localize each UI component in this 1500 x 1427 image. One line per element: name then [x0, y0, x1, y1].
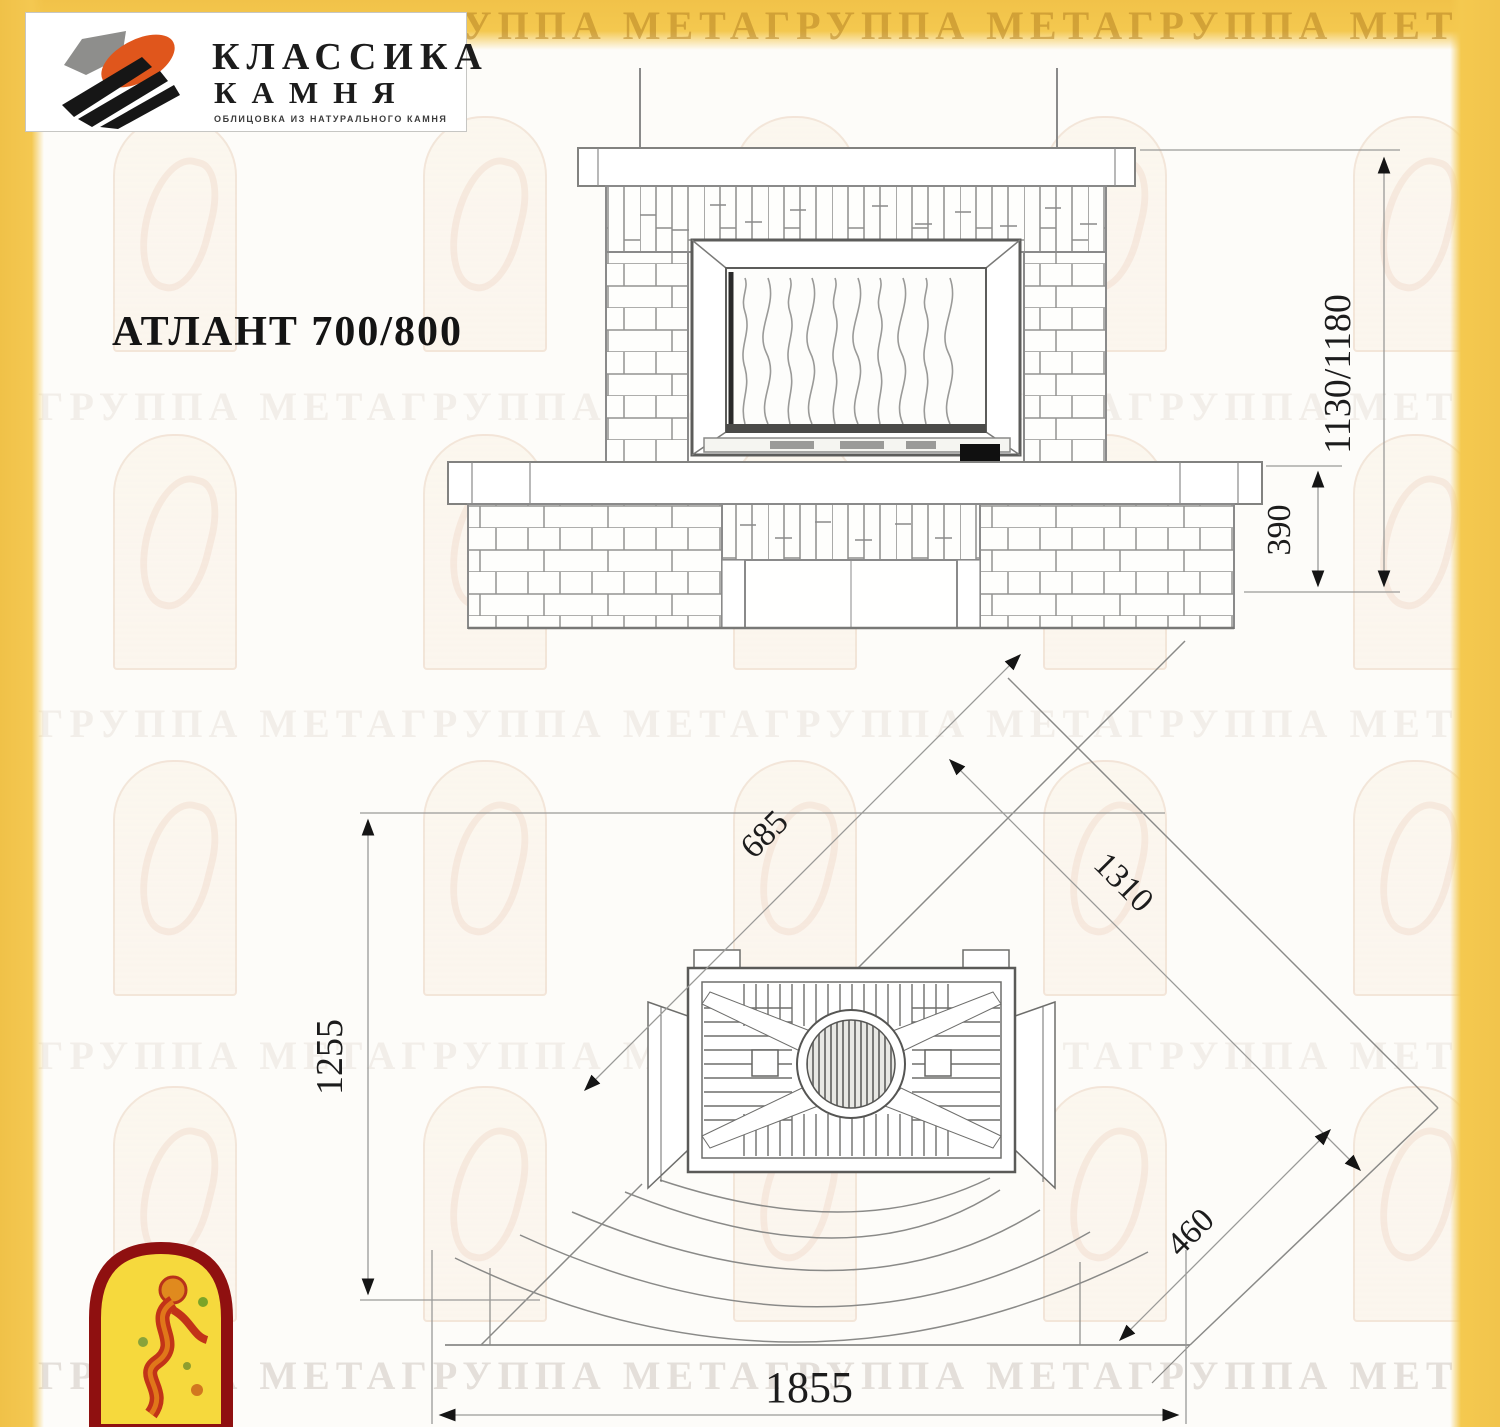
chimney-lines: [640, 68, 1057, 150]
insert-top-view: [648, 950, 1055, 1188]
hearth-arc: [455, 1252, 1148, 1342]
dim-label-right-side: 1310: [1086, 845, 1160, 919]
side-edge: [1190, 1108, 1438, 1345]
base-left-block: [468, 504, 722, 628]
meta-group-logo: [85, 1240, 237, 1427]
left-pilaster: [606, 252, 688, 462]
dim-line-corner-cut: [1120, 1130, 1330, 1340]
fireplace-datasheet: ГРУППА МЕТАГРУППА МЕТАГРУППА МЕТАГРУППА …: [0, 0, 1500, 1427]
right-wall-line: [1008, 678, 1438, 1108]
arch-figure-logo: [85, 1240, 237, 1427]
page-title: АТЛАНТ 700/800: [112, 308, 463, 356]
right-wing: [1015, 1002, 1055, 1188]
left-wing: [648, 1002, 688, 1188]
mantel-shelf: [578, 148, 1135, 186]
brand-name-line1: КЛАССИКА: [212, 35, 489, 79]
brand-tagline: ОБЛИЦОВКА ИЗ НАТУРАЛЬНОГО КАМНЯ: [214, 114, 448, 124]
stone-logo-graphic: [26, 13, 211, 129]
left-wall-line: [858, 641, 1185, 968]
technical-drawing: 1130/1180 390: [0, 0, 1500, 1427]
right-pilaster: [1024, 252, 1106, 462]
company-logo: КЛАССИКА КАМНЯ ОБЛИЦОВКА ИЗ НАТУРАЛЬНОГО…: [25, 12, 467, 132]
dim-label-front-width: 1855: [765, 1363, 853, 1412]
door-handle: [960, 444, 1000, 462]
front-elevation-view: [448, 68, 1262, 628]
dim-label-depth: 1255: [309, 1019, 351, 1095]
base-center-band: [722, 504, 980, 560]
hearth-shelf: [448, 462, 1262, 504]
base-right-block: [980, 504, 1234, 628]
dim-label-corner-cut: 460: [1159, 1201, 1221, 1263]
brand-name-line2: КАМНЯ: [214, 75, 410, 111]
plan-view: [445, 641, 1438, 1383]
dim-label-total-height: 1130/1180: [1317, 294, 1359, 454]
dim-label-base-height: 390: [1261, 505, 1298, 556]
